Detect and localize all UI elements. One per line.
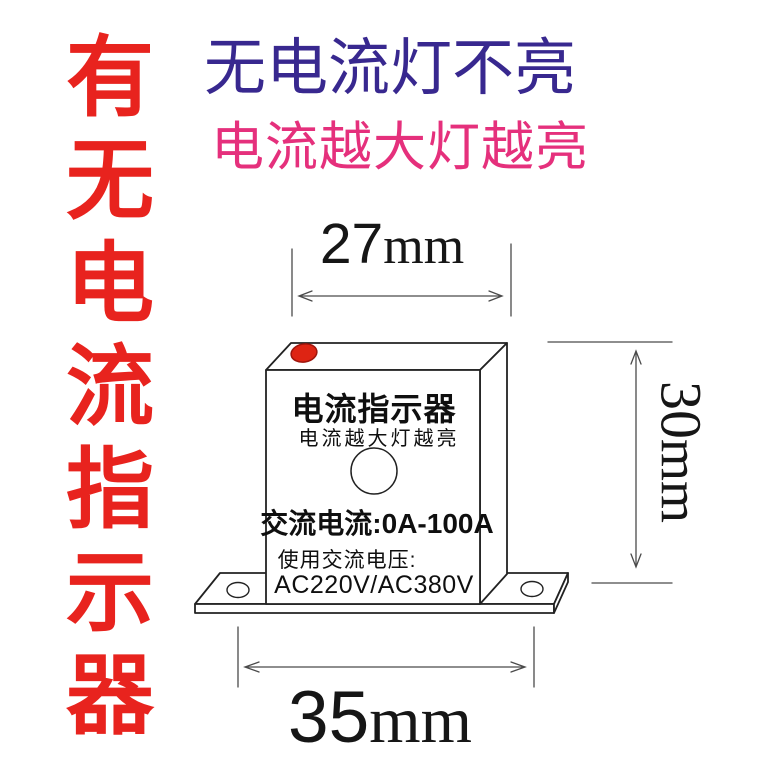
mounting-hole-left	[227, 583, 249, 598]
dimension-top-value: 27	[320, 212, 383, 276]
dimension-side-unit: mm	[650, 439, 710, 523]
device-line-art	[0, 0, 760, 760]
product-diagram: 有 无 电 流 指 示 器 无电流灯不亮 电流越大灯越亮	[0, 0, 760, 760]
dimension-bottom-label: 35mm	[288, 676, 472, 759]
dimension-side-value: 30	[649, 381, 714, 439]
device-spec-voltage-label: 使用交流电压:	[278, 544, 417, 574]
device-spec-current: 交流电流:0A-100A	[260, 502, 493, 542]
device-subtitle: 电流越大灯越亮	[299, 422, 460, 451]
dimension-bottom-unit: mm	[369, 684, 472, 757]
dimension-bottom-value: 35	[288, 677, 369, 758]
dimension-side-label: 30mm	[648, 381, 715, 523]
wire-hole	[351, 448, 397, 494]
base-plate-front	[195, 604, 554, 613]
mounting-hole-right	[521, 582, 543, 597]
dimension-top-label: 27mm	[320, 211, 464, 277]
device-right-face	[480, 343, 507, 604]
dimension-top-unit: mm	[383, 218, 464, 275]
device-spec-voltage-value: AC220V/AC380V	[274, 571, 474, 600]
